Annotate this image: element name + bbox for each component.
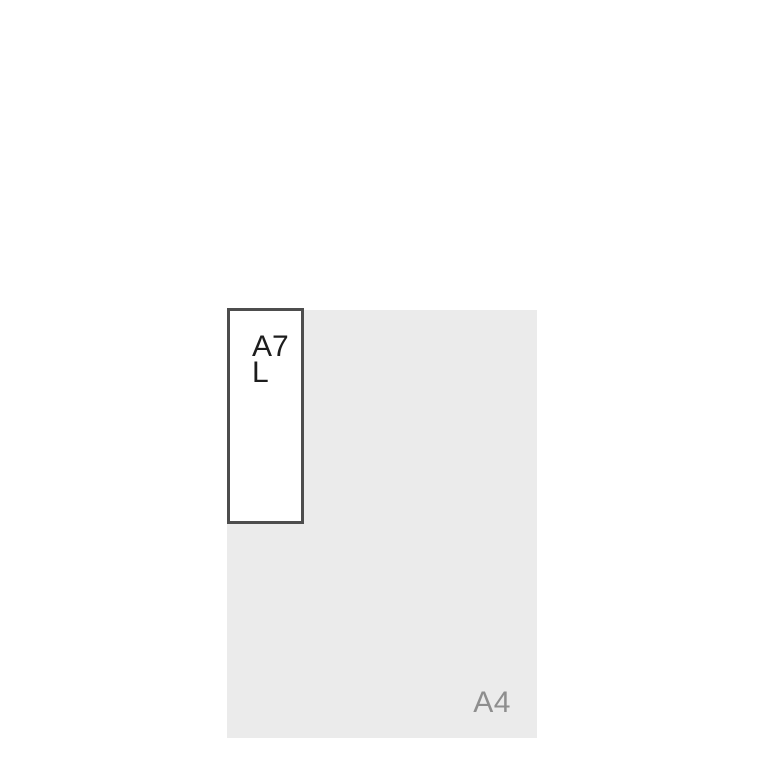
- a7l-sheet: A7 L: [227, 308, 304, 524]
- a7l-sheet-label: A7 L: [252, 334, 298, 386]
- paper-size-comparison-canvas: A4 A7 L: [0, 0, 765, 765]
- a4-sheet-label: A4: [473, 687, 511, 718]
